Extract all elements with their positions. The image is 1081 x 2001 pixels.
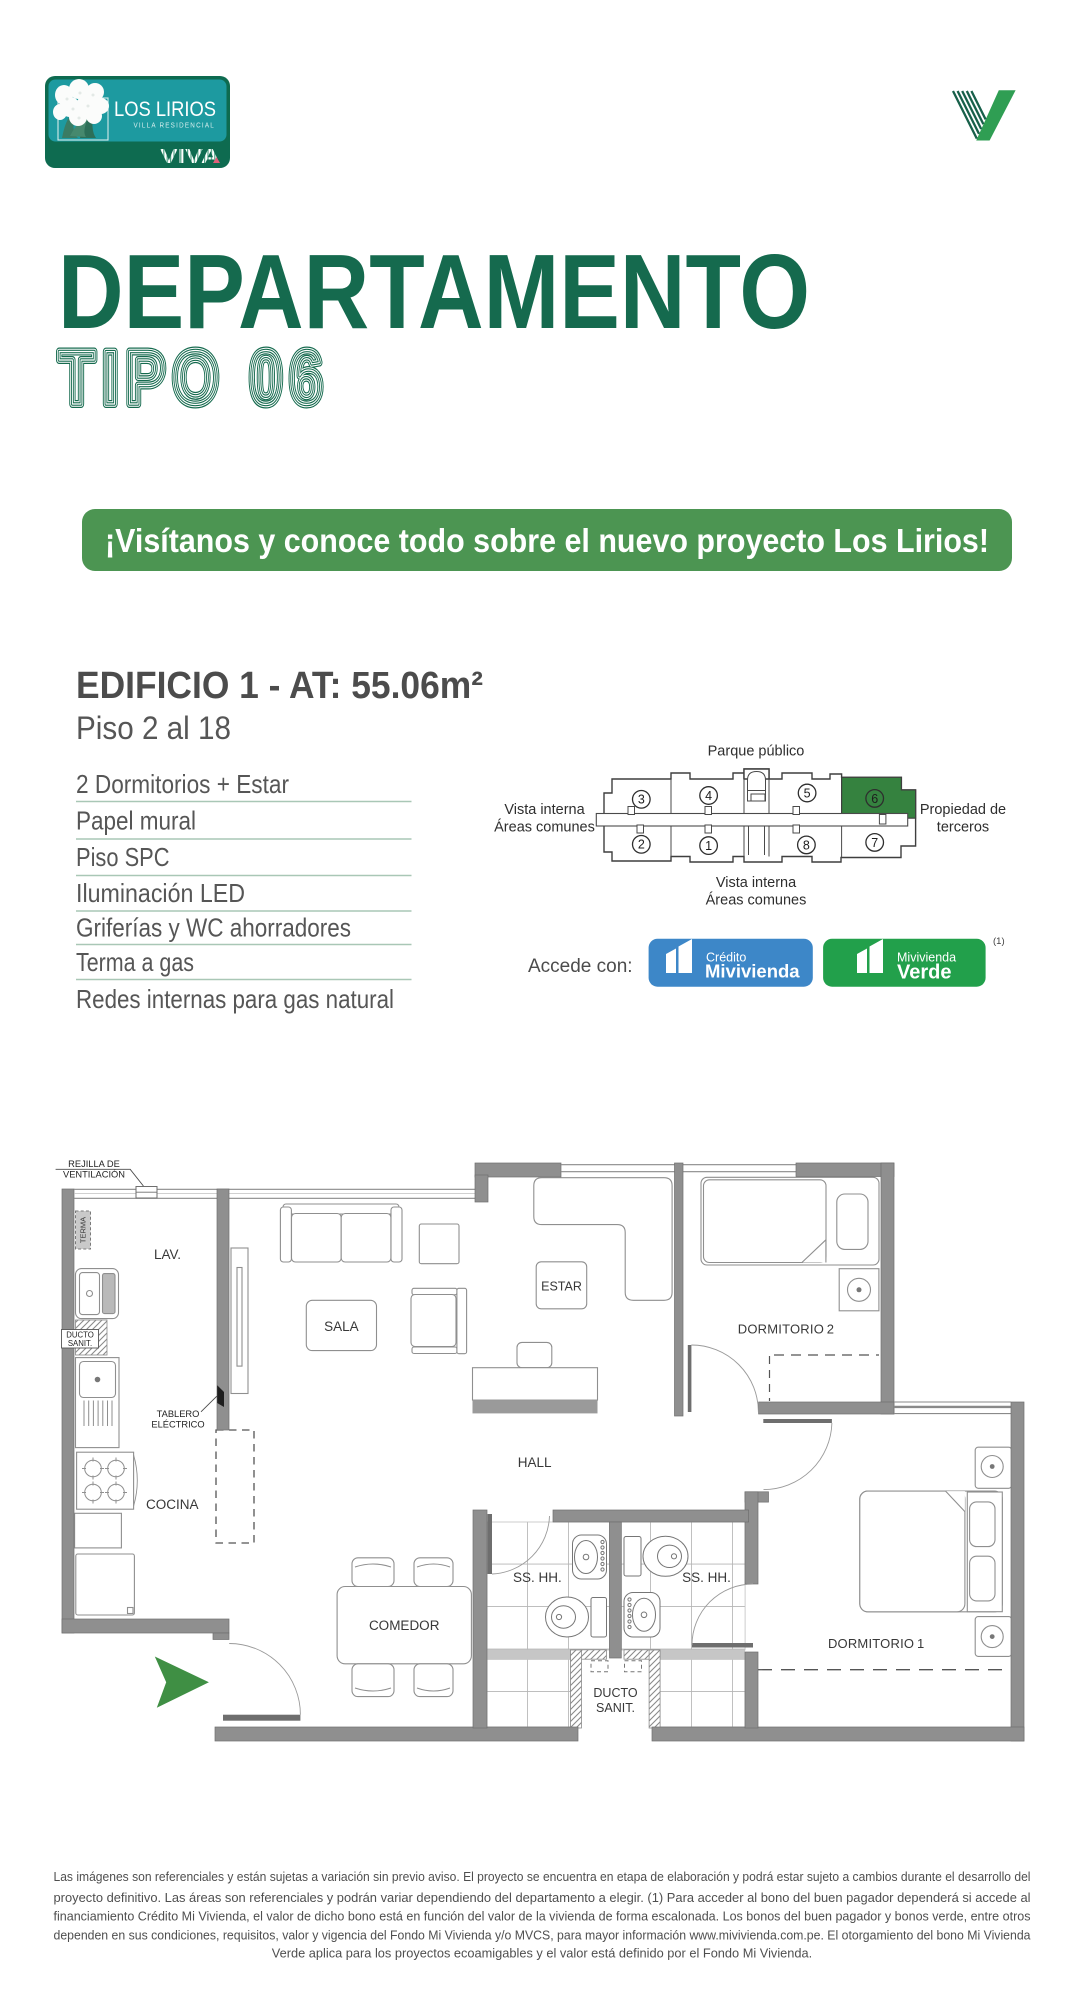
- svg-text:VILLA RESIDENCIAL: VILLA RESIDENCIAL: [134, 121, 216, 130]
- svg-text:ESTAR: ESTAR: [541, 1280, 582, 1294]
- svg-text:Las imágenes son referenciales: Las imágenes son referenciales y están s…: [54, 1869, 1031, 1884]
- svg-text:Verde: Verde: [897, 962, 951, 984]
- svg-text:SANIT.: SANIT.: [68, 1339, 92, 1348]
- svg-text:(1): (1): [993, 936, 1005, 947]
- svg-text:4: 4: [705, 789, 712, 803]
- svg-text:Verde aplica para los proyecto: Verde aplica para los proyectos ecoamiga…: [272, 1946, 812, 1961]
- svg-text:DUCTO: DUCTO: [593, 1686, 637, 1700]
- svg-text:Griferías y WC ahorradores: Griferías y WC ahorradores: [76, 913, 351, 943]
- svg-text:¡Visítanos y conoce todo sobre: ¡Visítanos y conoce todo sobre el nuevo …: [105, 522, 989, 559]
- svg-text:Papel mural: Papel mural: [76, 806, 196, 836]
- svg-text:DEPARTAMENTO: DEPARTAMENTO: [58, 233, 810, 351]
- svg-text:DORMITORIO 1: DORMITORIO 1: [828, 1636, 925, 1651]
- svg-text:COCINA: COCINA: [146, 1497, 199, 1512]
- svg-text:Terma a gas: Terma a gas: [76, 947, 194, 977]
- svg-text:EDIFICIO 1 - AT: 55.06m²: EDIFICIO 1 - AT: 55.06m²: [76, 665, 483, 707]
- svg-text:HALL: HALL: [518, 1455, 552, 1470]
- svg-text:2 Dormitorios + Estar: 2 Dormitorios + Estar: [76, 769, 289, 799]
- svg-text:Áreas comunes: Áreas comunes: [494, 819, 595, 836]
- svg-text:VENTILACIÓN: VENTILACIÓN: [63, 1170, 125, 1180]
- svg-text:Redes internas para gas natura: Redes internas para gas natural: [76, 984, 394, 1014]
- svg-text:TIPO 06: TIPO 06: [59, 336, 330, 421]
- svg-text:proyecto definitivo. Las áreas: proyecto definitivo. Las áreas son refer…: [54, 1890, 1031, 1905]
- svg-text:Áreas comunes: Áreas comunes: [706, 892, 807, 909]
- svg-text:COMEDOR: COMEDOR: [369, 1618, 440, 1633]
- svg-text:3: 3: [638, 793, 645, 807]
- svg-text:1: 1: [705, 839, 712, 853]
- svg-text:7: 7: [871, 836, 878, 850]
- svg-text:SALA: SALA: [324, 1319, 359, 1334]
- svg-text:LOS LIRIOS: LOS LIRIOS: [114, 98, 216, 121]
- svg-text:DORMITORIO 2: DORMITORIO 2: [738, 1322, 835, 1337]
- svg-text:TERMA: TERMA: [79, 1217, 88, 1243]
- svg-text:Vista interna: Vista interna: [504, 802, 585, 818]
- svg-text:Piso 2 al 18: Piso 2 al 18: [76, 710, 231, 746]
- svg-text:Piso SPC: Piso SPC: [76, 842, 170, 872]
- svg-text:SS. HH.: SS. HH.: [513, 1570, 562, 1585]
- svg-text:ELÉCTRICO: ELÉCTRICO: [151, 1420, 204, 1430]
- svg-text:Propiedad de: Propiedad de: [920, 802, 1006, 818]
- svg-text:Mivivienda: Mivivienda: [705, 961, 800, 982]
- svg-text:Iluminación LED: Iluminación LED: [76, 878, 245, 908]
- svg-text:6: 6: [871, 792, 878, 806]
- svg-text:LAV.: LAV.: [154, 1247, 181, 1262]
- svg-text:TABLERO: TABLERO: [157, 1409, 200, 1419]
- svg-text:Vista interna: Vista interna: [716, 875, 797, 891]
- svg-text:VIVA: VIVA: [160, 146, 220, 168]
- svg-text:Parque público: Parque público: [708, 744, 805, 760]
- svg-text:2: 2: [638, 838, 645, 852]
- svg-text:SANIT.: SANIT.: [596, 1701, 635, 1715]
- svg-text:terceros: terceros: [937, 820, 989, 836]
- svg-text:8: 8: [803, 838, 810, 852]
- svg-text:SS. HH.: SS. HH.: [682, 1570, 731, 1585]
- svg-text:5: 5: [804, 786, 811, 800]
- svg-text:REJILLA DE: REJILLA DE: [68, 1159, 120, 1169]
- svg-text:dependen en sus condiciones, r: dependen en sus condiciones, requisitos,…: [54, 1928, 1032, 1943]
- svg-text:Accede con:: Accede con:: [528, 956, 633, 977]
- svg-text:financiamiento Crédito Mi Vivi: financiamiento Crédito Mi Vivienda, el v…: [54, 1909, 1031, 1924]
